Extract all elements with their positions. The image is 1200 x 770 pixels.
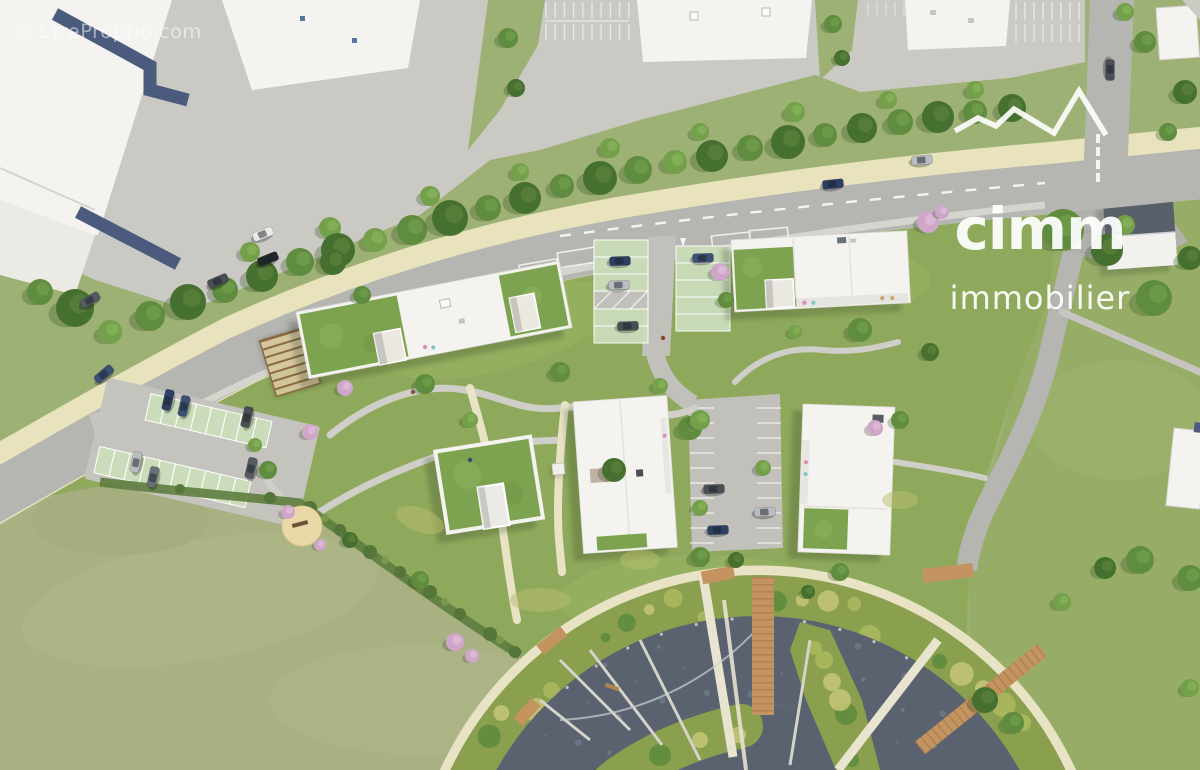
- residence-2: [721, 231, 911, 321]
- commercial-building-5: [905, 0, 1010, 50]
- aerial-scene: [0, 0, 1200, 770]
- commercial-building-4: [637, 0, 812, 62]
- garden-shed: [550, 463, 565, 478]
- commercial-building-6: [1156, 5, 1200, 60]
- car: [1103, 57, 1115, 81]
- aerial-site-render: © EtreProprio.com cimm immobilier: [0, 0, 1200, 770]
